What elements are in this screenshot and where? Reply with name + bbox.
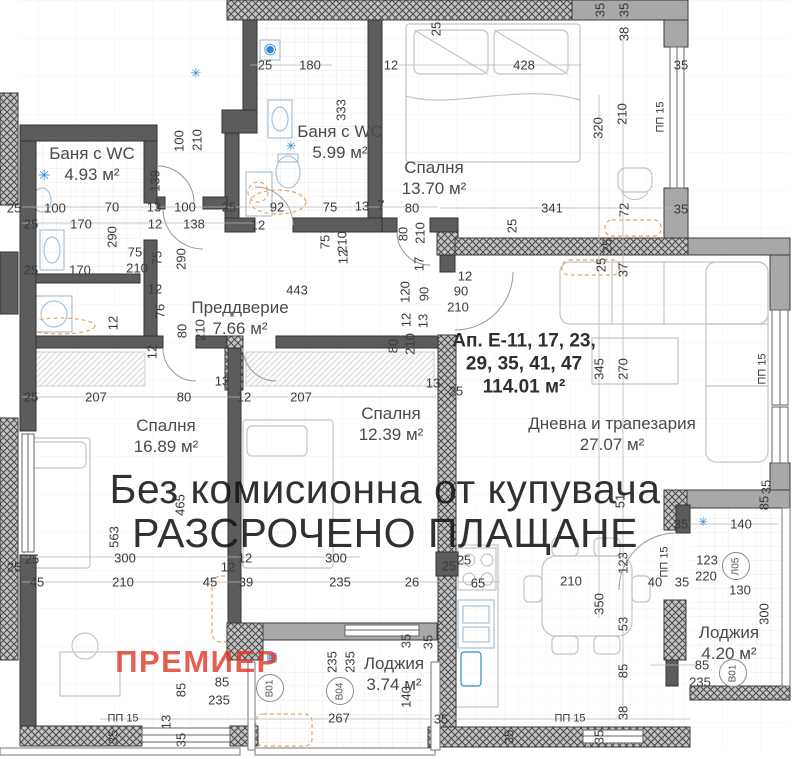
room-name: Лоджия: [699, 622, 759, 643]
dimension-label: 12: [337, 250, 350, 264]
dimension-label: 85: [617, 664, 630, 678]
dimension-label: 80: [177, 391, 191, 404]
dimension-label: 76: [154, 304, 167, 318]
dimension-label: 140: [730, 518, 752, 531]
dimension-label: 35: [175, 733, 188, 747]
room-area: 27.07 м²: [528, 434, 696, 455]
dimension-label: 170: [69, 264, 91, 277]
dimension-label: 210: [112, 576, 134, 589]
dimension-label: 139: [149, 170, 162, 192]
dimension-label: 75: [128, 246, 142, 259]
dimension-label: 25: [24, 218, 38, 231]
dimension-label: 35: [503, 730, 516, 744]
dimension-label: ПП 15: [758, 353, 769, 384]
dimension-label: 100: [174, 201, 196, 214]
dimension-label: 25: [7, 561, 21, 574]
dimension-label: 210: [447, 301, 469, 314]
dimension-label: 267: [328, 712, 350, 725]
dimension-label: 13: [160, 715, 173, 729]
dimension-label: 75: [319, 235, 332, 249]
dimension-label: 563: [108, 526, 121, 548]
dimension-label: 341: [541, 202, 563, 215]
room-label: Дневна и трапезария27.07 м²: [528, 413, 696, 455]
dimension-label: 25: [25, 553, 39, 566]
room-area: 5.99 м²: [297, 142, 382, 163]
dimension-label: 120: [399, 281, 412, 303]
dimension-label: 25: [24, 391, 38, 404]
dimension-label: 80: [387, 339, 400, 353]
dimension-label: 25: [595, 258, 608, 272]
dimension-label: 138: [183, 218, 205, 231]
dimension-label: 210: [126, 262, 148, 275]
apartment-numbers-line1: Ап. Е-11, 17, 23,: [452, 330, 596, 353]
dimension-label: 270: [617, 358, 630, 380]
dimension-label: 45: [203, 576, 217, 589]
room-area: 3.74 м²: [364, 674, 424, 695]
dimension-label: 12: [146, 345, 159, 359]
dimension-label: 75: [151, 251, 164, 265]
dimension-label: 45: [30, 576, 44, 589]
dimension-label: 80: [405, 202, 419, 215]
room-label: Спалня13.70 м²: [402, 157, 467, 199]
dimension-label: 290: [175, 248, 188, 270]
dimension-label: 210: [616, 103, 629, 125]
dimension-label: 12: [237, 391, 251, 404]
dimension-label: 90: [454, 285, 468, 298]
dimension-label: 38: [618, 27, 631, 41]
dimension-label: 35: [760, 480, 773, 494]
dimension-label: 207: [85, 391, 107, 404]
dimension-label: 12: [148, 218, 162, 231]
dimension-label: 12: [221, 561, 235, 574]
dimension-label: 180: [299, 59, 321, 72]
dimension-label: 210: [414, 222, 427, 244]
dimension-label: 35: [400, 634, 413, 648]
dimension-label: 85: [758, 496, 771, 510]
dimension-label: 90: [418, 287, 431, 301]
dimension-label: 300: [758, 603, 771, 625]
dimension-label: 170: [70, 218, 92, 231]
ac-unit-icon: ✳: [191, 67, 202, 80]
dimension-label: 39: [239, 576, 253, 589]
room-name: Баня с WC: [49, 143, 134, 164]
dimension-label: 80: [397, 227, 410, 241]
room-area: 13.70 м²: [402, 178, 467, 199]
dimension-label: 12: [384, 59, 398, 72]
dimension-label: 35: [434, 713, 448, 726]
dimension-label: 25: [24, 264, 38, 277]
agency-brand: ПРЕМИЕР: [115, 644, 279, 680]
dimension-label: 35: [675, 576, 689, 589]
dimension-label: 70: [105, 201, 119, 214]
room-area: 12.39 м²: [359, 424, 424, 445]
dimension-label: 92: [270, 201, 284, 214]
room-label: Лоджия3.74 м²: [364, 653, 424, 695]
room-label: Преддверие7.66 м²: [191, 297, 288, 339]
dimension-label: 12: [107, 316, 120, 330]
dimension-label: 25: [442, 560, 456, 573]
dimension-label: 12: [400, 313, 413, 327]
dimension-label: 235: [689, 676, 711, 689]
room-label: Спалня16.89 м²: [134, 415, 199, 457]
room-area: 16.89 м²: [134, 436, 199, 457]
dimension-label: 13: [215, 375, 229, 388]
dimension-label: 12: [251, 219, 265, 232]
dimension-label: 207: [290, 391, 312, 404]
room-name: Лоджия: [364, 653, 424, 674]
dimension-label: 210: [560, 575, 582, 588]
dimension-label: 35: [674, 59, 688, 72]
dimension-label: 25: [430, 22, 443, 36]
room-label: Лоджия4.20 м²: [699, 622, 759, 664]
ac-unit-icon: ✳: [286, 140, 297, 153]
room-label: Спалня12.39 м²: [359, 403, 424, 445]
dimension-label: 100: [44, 202, 66, 215]
dimension-label: 13: [147, 201, 161, 214]
room-name: Спалня: [359, 403, 424, 424]
dimension-label: 85: [175, 683, 188, 697]
dimension-label: 7: [377, 199, 384, 212]
dimension-label: ПП 15: [656, 101, 667, 132]
dimension-label: 235: [208, 694, 230, 707]
dimension-label: 235: [344, 651, 357, 673]
dimension-label: 17: [413, 257, 426, 271]
dimension-label: 235: [326, 651, 339, 673]
dimension-label: 100: [173, 130, 186, 152]
watermark-line2: РАЗСРОЧЕНО ПЛАЩАНЕ: [132, 510, 638, 557]
dimension-label: 25: [222, 201, 236, 214]
type-marker: В04: [326, 677, 354, 705]
type-marker: В01: [719, 659, 747, 687]
apartment-total-area: 114.01 м²: [452, 376, 596, 399]
dimension-label: 290: [106, 226, 119, 248]
dimension-label: ПП 15: [554, 714, 585, 725]
dimension-label: 80: [176, 324, 189, 338]
dimension-label: 35: [674, 518, 688, 531]
dimension-label: ПП 15: [107, 714, 138, 725]
room-area: 7.66 м²: [191, 318, 288, 339]
dimension-label: 72: [618, 203, 631, 217]
dimension-label: 65: [471, 577, 485, 590]
dimension-label: 123: [696, 554, 718, 567]
dimension-label: 12: [458, 270, 472, 283]
dimension-label: 37: [617, 263, 630, 277]
dimension-label: 26: [405, 576, 419, 589]
dimension-label: 210: [404, 333, 417, 355]
room-name: Спалня: [402, 157, 467, 178]
dimension-label: 25: [7, 202, 21, 215]
dimension-label: 35: [594, 3, 607, 17]
room-label: Баня с WC4.93 м²: [49, 143, 134, 185]
dimension-label: 35: [422, 635, 435, 649]
watermark-line1: Без комисионна от купувача: [109, 466, 660, 513]
dimension-label: 350: [593, 593, 606, 615]
room-name: Дневна и трапезария: [528, 413, 696, 434]
dimension-label: 443: [286, 284, 308, 297]
dimension-label: ПП 15: [660, 546, 671, 577]
apartment-info: Ап. Е-11, 17, 23, 29, 35, 41, 47 114.01 …: [452, 330, 596, 399]
room-name: Спалня: [134, 415, 199, 436]
dimension-label: 320: [592, 117, 605, 139]
dimension-label: 220: [695, 570, 717, 583]
dimension-label: 13: [355, 200, 369, 213]
apartment-numbers-line2: 29, 35, 41, 47: [452, 353, 596, 376]
dimension-label: 75: [323, 201, 337, 214]
floor-plan: 25180123332542835353835210320ПП 15341723…: [0, 0, 800, 759]
dimension-label: 13: [417, 314, 430, 328]
dimension-label: 235: [329, 576, 351, 589]
room-label: Баня с WC5.99 м²: [297, 121, 382, 163]
room-name: Преддверие: [191, 297, 288, 318]
boiler-icon: ◉: [263, 42, 276, 57]
ac-unit-icon: ✳: [38, 169, 51, 184]
dimension-label: 25: [506, 219, 519, 233]
dimension-label: 35: [674, 203, 688, 216]
ac-unit-icon: ✳: [698, 516, 708, 528]
dimension-label: 428: [513, 59, 535, 72]
dimension-label: 333: [335, 99, 348, 121]
dimension-label: 35: [618, 3, 631, 17]
room-name: Баня с WC: [297, 121, 382, 142]
dimension-label: 35: [593, 730, 606, 744]
dimension-label: 35: [107, 730, 120, 744]
dimension-label: 25: [258, 59, 272, 72]
dimension-label: 53: [617, 617, 630, 631]
dimension-label: 12: [148, 283, 162, 296]
dimension-label: 13: [426, 377, 440, 390]
type-marker: Л05: [722, 552, 750, 580]
dimension-label: 25: [601, 239, 614, 253]
dimension-label: 210: [191, 129, 204, 151]
dimension-label: 38: [617, 706, 630, 720]
room-area: 4.93 м²: [49, 164, 134, 185]
dimension-label: 130: [729, 584, 751, 597]
